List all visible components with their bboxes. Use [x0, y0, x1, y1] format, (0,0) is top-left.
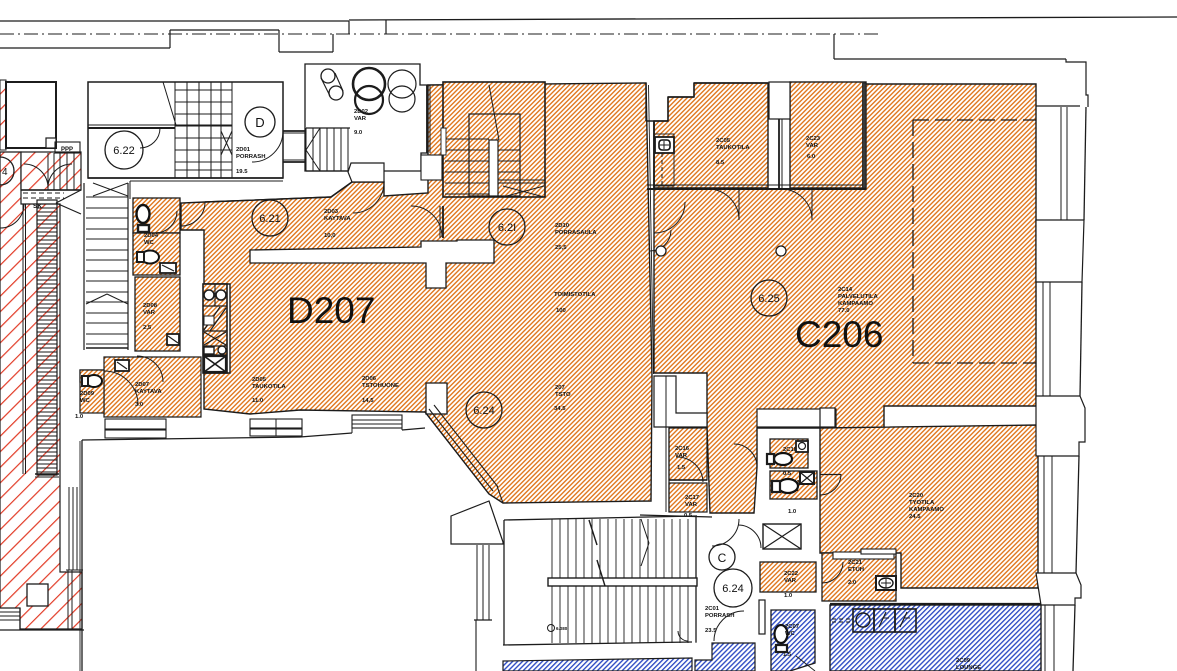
svg-text:WC: WC: [785, 631, 796, 637]
svg-text:2C23: 2C23: [806, 136, 821, 142]
svg-text:2D02: 2D02: [354, 109, 369, 115]
svg-text:1.0: 1.0: [75, 414, 84, 420]
svg-text:2D06: 2D06: [362, 376, 377, 382]
svg-text:TSTO: TSTO: [555, 392, 571, 398]
svg-text:VAR: VAR: [354, 116, 367, 122]
svg-text:11.0: 11.0: [252, 398, 264, 404]
svg-text:WC: WC: [144, 240, 155, 246]
svg-text:2C17: 2C17: [685, 495, 700, 501]
svg-text:VAR: VAR: [685, 502, 698, 508]
svg-text:TSTOHUONE: TSTOHUONE: [362, 383, 399, 389]
svg-text:100: 100: [556, 308, 567, 314]
svg-text:2C01: 2C01: [705, 606, 720, 612]
svg-text:2D03: 2D03: [324, 209, 339, 215]
svg-text:KAMPAAMO: KAMPAAMO: [838, 301, 873, 307]
svg-text:PORRASAULA: PORRASAULA: [555, 230, 597, 236]
svg-text:WC: WC: [80, 398, 91, 404]
svg-text:2C05: 2C05: [716, 138, 731, 144]
svg-text:4: 4: [2, 167, 8, 178]
svg-text:1.0: 1.0: [784, 593, 793, 599]
svg-text:PALVELUTILA: PALVELUTILA: [838, 294, 878, 300]
svg-text:PPP: PPP: [61, 147, 73, 153]
svg-text:34.5: 34.5: [554, 406, 566, 412]
svg-text:2C16: 2C16: [675, 446, 690, 452]
svg-text:14,5: 14,5: [362, 398, 374, 404]
svg-text:0.5: 0.5: [783, 471, 792, 477]
svg-text:1.5: 1.5: [677, 465, 686, 471]
svg-text:KAMPAAMO: KAMPAAMO: [909, 507, 944, 513]
svg-text:6.25: 6.25: [758, 293, 779, 305]
svg-text:6.24: 6.24: [722, 583, 743, 595]
svg-text:ETUH: ETUH: [848, 567, 864, 573]
svg-text:1.5: 1.5: [783, 652, 792, 658]
svg-text:207: 207: [555, 385, 566, 391]
svg-text:2C09: 2C09: [956, 658, 971, 664]
svg-text:D207: D207: [287, 290, 375, 331]
svg-text:KAYTAVA: KAYTAVA: [135, 389, 162, 395]
svg-text:6.22: 6.22: [113, 145, 134, 157]
svg-text:2C20: 2C20: [909, 493, 924, 499]
svg-text:TOIMISTOTILA: TOIMISTOTILA: [554, 292, 596, 298]
svg-text:VAR: VAR: [806, 143, 819, 149]
svg-text:24.5: 24.5: [909, 514, 921, 520]
svg-text:6.2I: 6.2I: [498, 222, 516, 234]
svg-text:10,0: 10,0: [324, 233, 336, 239]
svg-text:2,5: 2,5: [143, 325, 152, 331]
svg-text:6.0: 6.0: [807, 154, 816, 160]
svg-text:2D01: 2D01: [236, 147, 251, 153]
svg-text:1.0: 1.0: [788, 509, 797, 515]
svg-text:2C14: 2C14: [838, 287, 853, 293]
svg-text:2D05: 2D05: [252, 377, 267, 383]
svg-text:2C22: 2C22: [784, 571, 799, 577]
svg-text:D: D: [255, 115, 264, 130]
svg-text:2D10: 2D10: [555, 223, 570, 229]
svg-text:LOUNGE: LOUNGE: [956, 665, 981, 671]
svg-text:TAUKOTILA: TAUKOTILA: [252, 384, 286, 390]
svg-text:VAR: VAR: [784, 578, 797, 584]
svg-text:PORRASH: PORRASH: [236, 154, 265, 160]
svg-text:2C21: 2C21: [848, 560, 863, 566]
svg-text:19.5: 19.5: [236, 169, 248, 175]
svg-text:2.0: 2.0: [848, 580, 857, 586]
svg-text:6.080: 6.080: [556, 626, 568, 631]
svg-text:2C07: 2C07: [785, 624, 800, 630]
svg-text:9.0: 9.0: [354, 130, 363, 136]
svg-text:C: C: [718, 551, 727, 565]
svg-text:2D08: 2D08: [143, 303, 158, 309]
svg-text:KAYTAVA: KAYTAVA: [324, 216, 351, 222]
svg-text:TAUKOTILA: TAUKOTILA: [716, 145, 750, 151]
svg-text:8.5: 8.5: [716, 160, 725, 166]
svg-text:25,5: 25,5: [555, 245, 567, 251]
svg-text:6.21: 6.21: [259, 213, 280, 225]
svg-text:VAR: VAR: [143, 310, 156, 316]
svg-text:2D09: 2D09: [80, 391, 95, 397]
svg-text:C206: C206: [795, 314, 883, 355]
svg-text:2D07: 2D07: [135, 382, 150, 388]
svg-text:TYOTILA: TYOTILA: [909, 500, 935, 506]
svg-text:6.24: 6.24: [473, 405, 494, 417]
svg-text:3.0: 3.0: [135, 402, 144, 408]
svg-text:2D04: 2D04: [144, 233, 159, 239]
